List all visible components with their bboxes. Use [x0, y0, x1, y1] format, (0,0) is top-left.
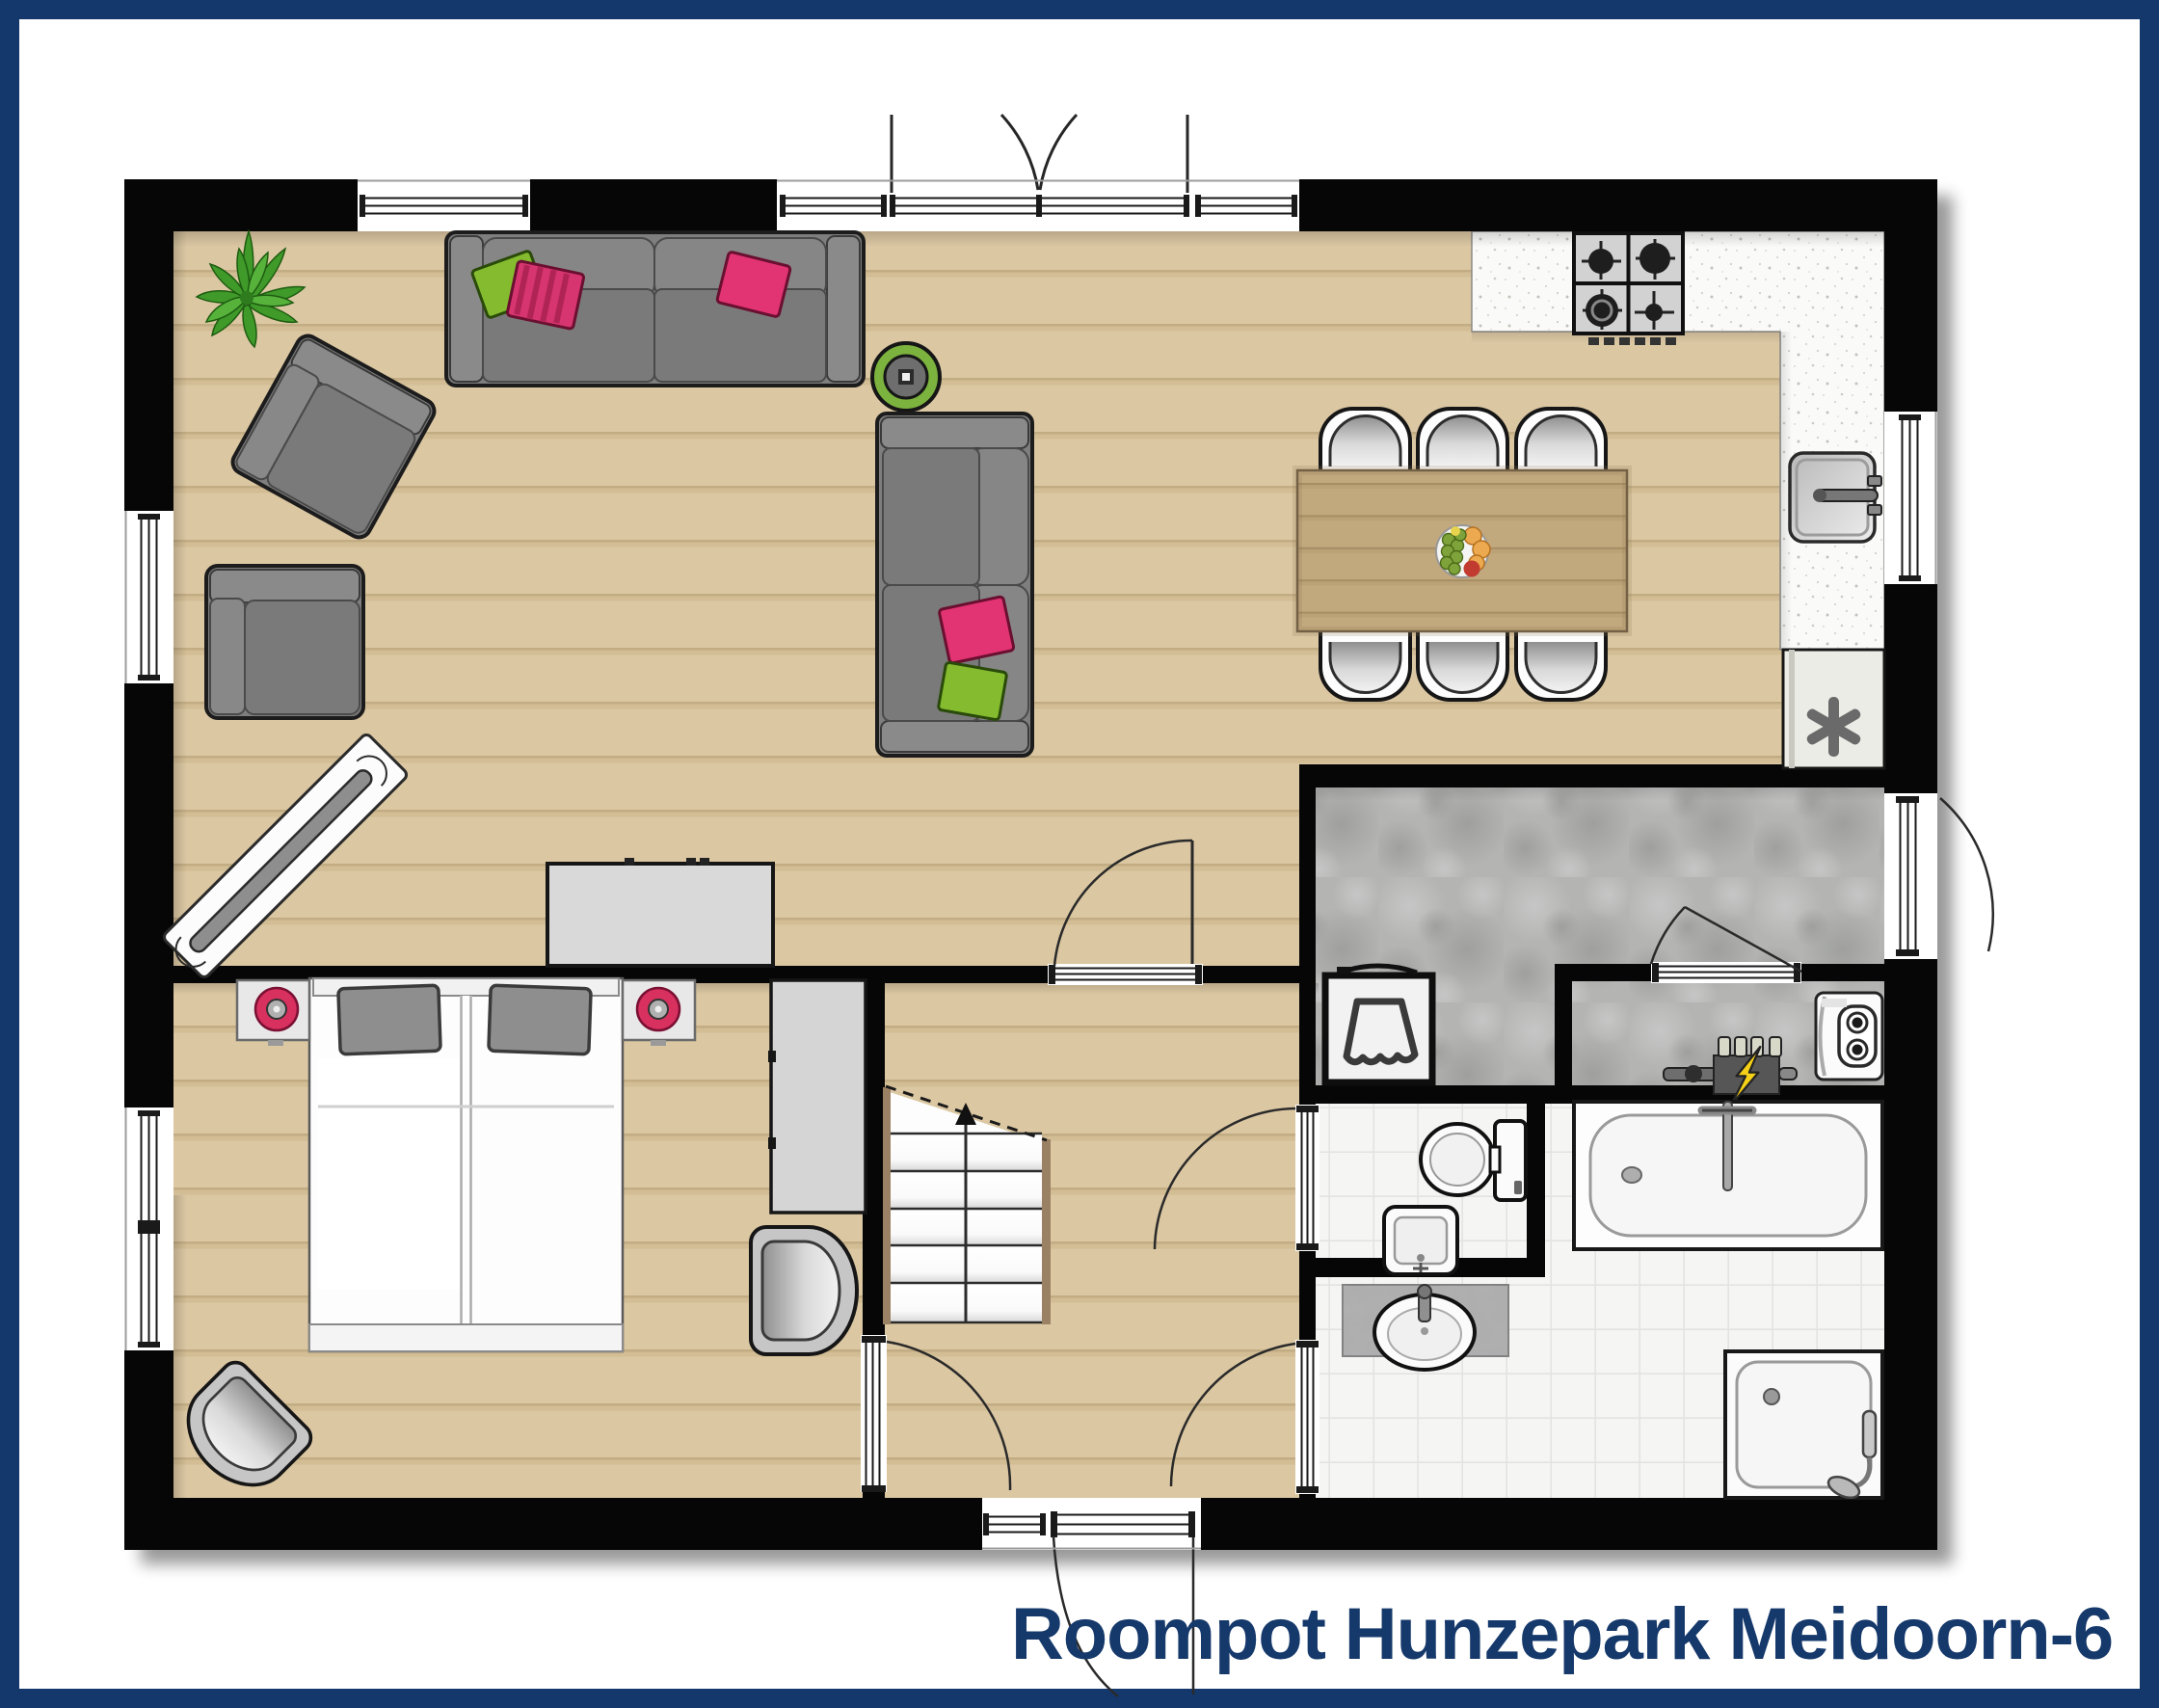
- svg-text:Roompot Hunzepark Meidoorn-6: Roompot Hunzepark Meidoorn-6: [1011, 1593, 2113, 1675]
